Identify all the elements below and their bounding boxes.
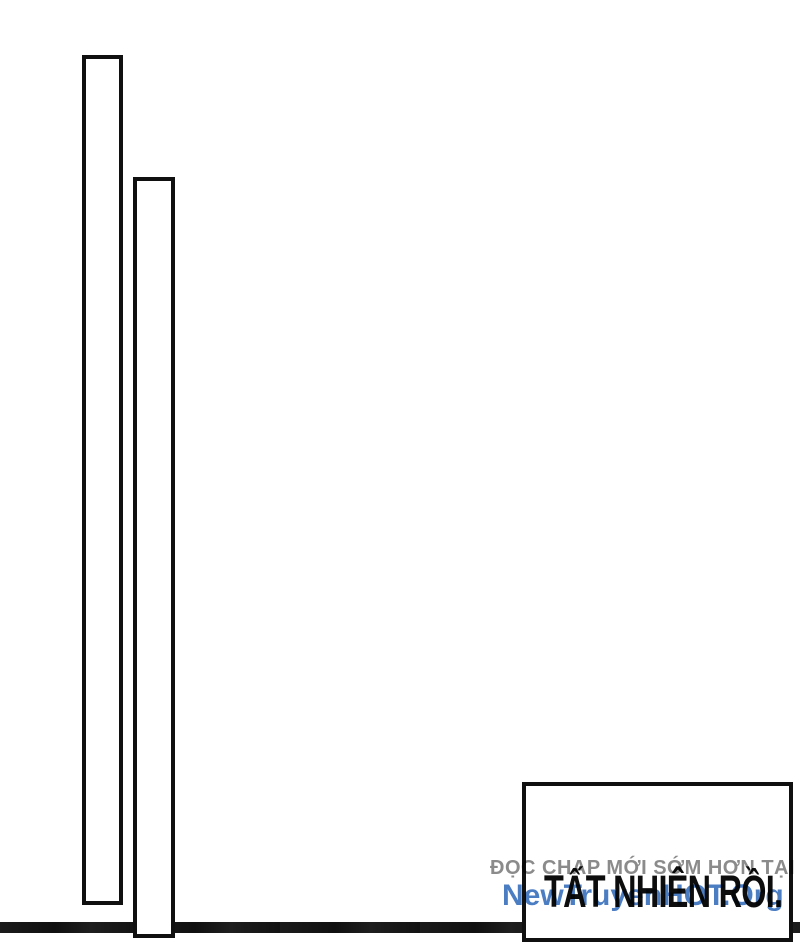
- panel-line-art-short-rectangle: [133, 177, 175, 938]
- watermark-text-line1: ĐỌC CHAP MỚI SỚM HƠN TẠI: [490, 858, 795, 878]
- panel-line-art-tall-rectangle: [82, 55, 123, 905]
- watermark-site-name: NewTruyenHOT.Org: [502, 881, 784, 911]
